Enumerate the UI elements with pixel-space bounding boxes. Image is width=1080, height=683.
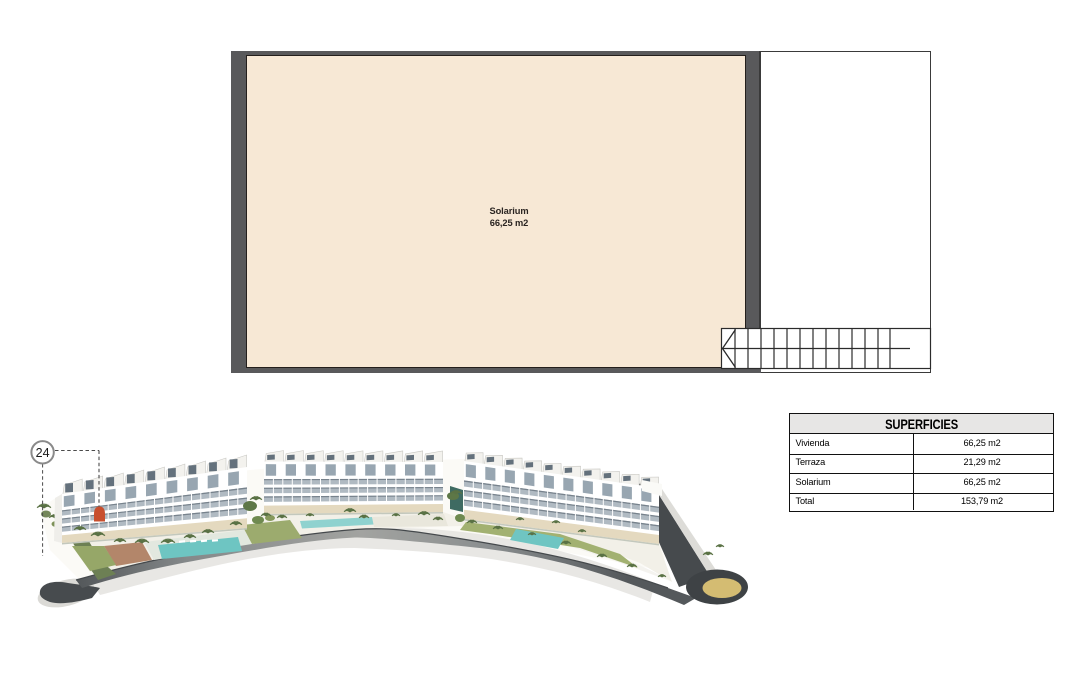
svg-text:24: 24 [36,446,50,460]
